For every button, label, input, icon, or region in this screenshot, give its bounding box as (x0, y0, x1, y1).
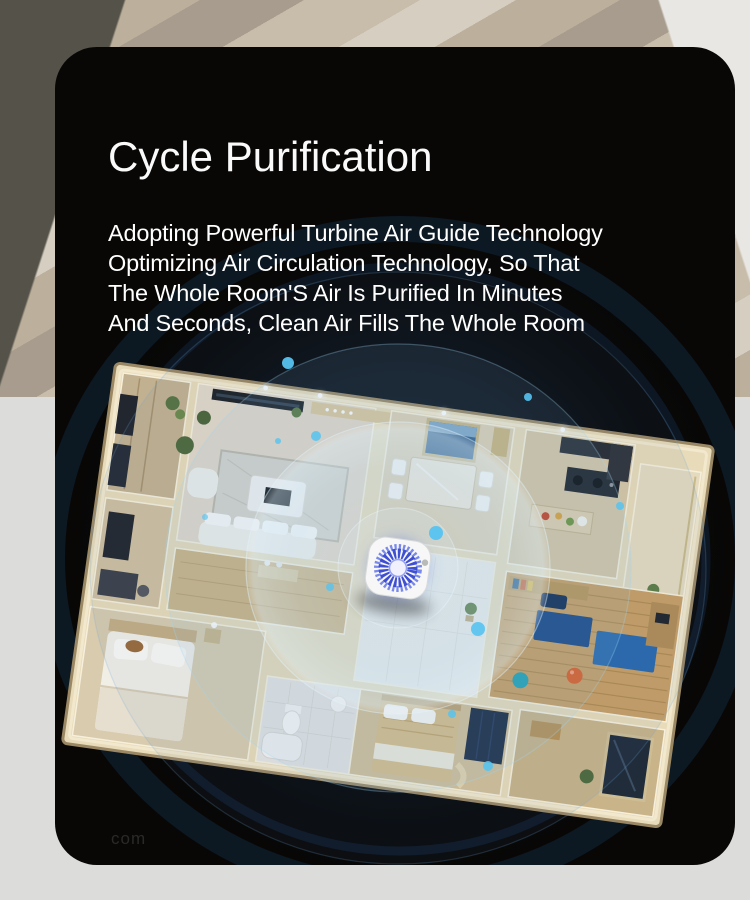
product-description: Adopting Powerful Turbine Air Guide Tech… (108, 218, 603, 338)
description-line: Adopting Powerful Turbine Air Guide Tech… (108, 218, 603, 248)
watermark-text: com (111, 829, 146, 849)
description-line: Optimizing Air Circulation Technology, S… (108, 248, 603, 278)
content-card: Cycle Purification Adopting Powerful Tur… (55, 47, 735, 865)
description-line: And Seconds, Clean Air Fills The Whole R… (108, 308, 603, 338)
description-line: The Whole Room'S Air Is Purified In Minu… (108, 278, 603, 308)
page-title: Cycle Purification (108, 133, 432, 181)
